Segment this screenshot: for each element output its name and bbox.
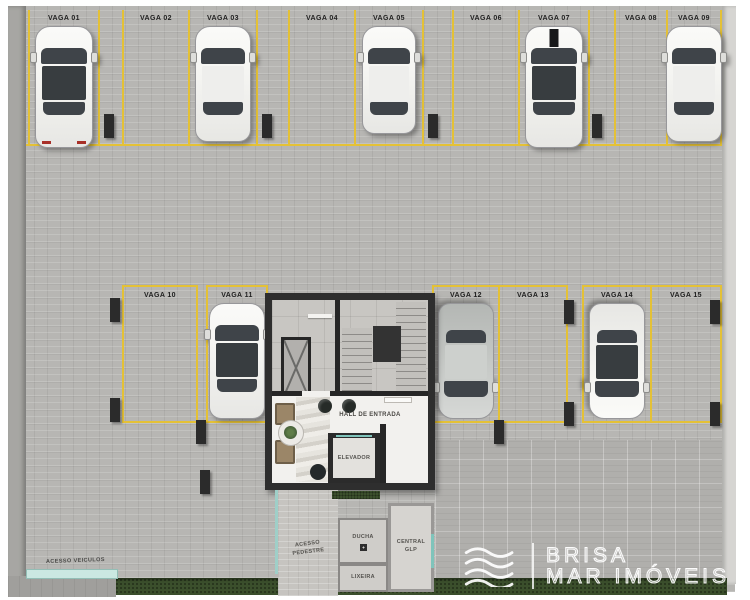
stool — [318, 399, 332, 413]
car-rear-window — [370, 102, 408, 115]
parking-stall-vaga-08: VAGA 08 — [614, 10, 668, 146]
car-mirror — [190, 52, 197, 63]
gas-central-room: CENTRAL GLP — [388, 503, 434, 592]
brand-line2: MAR IMÓVEIS — [546, 566, 730, 587]
waves-icon — [462, 545, 520, 587]
car-rear-window — [446, 330, 486, 343]
car-top-view — [209, 303, 265, 419]
brand-line1: BRISA — [546, 545, 730, 566]
stool — [342, 399, 356, 413]
stall-label: VAGA 02 — [124, 15, 188, 22]
car-mirror — [584, 382, 591, 393]
elevator: ELEVADOR — [328, 433, 380, 483]
parking-stall-vaga-02: VAGA 02 — [122, 10, 190, 146]
pillar — [196, 420, 206, 444]
car-top-view — [195, 26, 251, 142]
pillar — [262, 114, 272, 138]
parking-stall-vaga-11: VAGA 11 — [206, 285, 268, 423]
car-roof — [42, 66, 86, 100]
car-top-view — [589, 303, 645, 419]
car-mirror — [520, 52, 527, 63]
parking-stall-vaga-13: VAGA 13 — [498, 285, 568, 423]
shaft-void — [281, 337, 311, 399]
pillar — [110, 398, 120, 422]
stall-label: VAGA 07 — [520, 15, 588, 22]
car-top-view — [525, 26, 583, 148]
car-mirror — [91, 52, 98, 63]
car-mirror — [581, 52, 588, 63]
car-roof — [216, 343, 258, 377]
car-mirror — [204, 329, 211, 340]
pillar — [428, 114, 438, 138]
stall-label: VAGA 06 — [454, 15, 518, 22]
car-windshield — [672, 48, 716, 64]
door — [308, 314, 332, 318]
stall-label: VAGA 10 — [124, 292, 196, 299]
hall-label: HALL DE ENTRADA — [326, 412, 414, 418]
vehicle-entrance-ramp — [26, 569, 118, 579]
pillar — [710, 300, 720, 324]
car-mirror — [357, 52, 364, 63]
elevator-door — [336, 435, 372, 437]
car-roof — [202, 66, 244, 100]
car-top-view — [362, 26, 416, 134]
stall-label: VAGA 13 — [500, 292, 566, 299]
parking-stall-vaga-03: VAGA 03 — [190, 10, 258, 146]
logo-divider — [532, 543, 534, 589]
car-windshield — [201, 48, 245, 64]
stair-wall — [335, 300, 340, 395]
pillar — [564, 402, 574, 426]
right-wall — [722, 6, 736, 584]
staircase — [340, 300, 428, 395]
shaft-cross-icon — [284, 340, 308, 396]
car-mirror — [720, 52, 727, 63]
car-rear-window — [43, 102, 85, 115]
pillar — [200, 470, 210, 494]
car-rear-window — [203, 102, 243, 115]
stall-label: VAGA 08 — [616, 15, 666, 22]
car-top-view — [35, 26, 93, 148]
pillar — [710, 402, 720, 426]
shower-drain — [360, 544, 367, 551]
stall-label: VAGA 04 — [290, 15, 354, 22]
pillar — [592, 114, 602, 138]
left-wall — [8, 6, 26, 584]
car-mirror — [643, 382, 650, 393]
plant — [284, 426, 297, 439]
hedge — [332, 491, 380, 499]
brand-name: BRISA MAR IMÓVEIS — [546, 545, 730, 587]
car-roof — [369, 66, 409, 100]
parking-stall-vaga-10: VAGA 10 — [122, 285, 198, 423]
car-windshield — [41, 48, 87, 64]
stall-label: VAGA 12 — [434, 292, 498, 299]
room-label: LIXEIRA — [351, 574, 375, 580]
car-rear-window — [597, 330, 637, 343]
pillar — [564, 300, 574, 324]
car-windshield — [444, 381, 488, 397]
parking-stall-vaga-07: VAGA 07 — [520, 10, 590, 146]
bench — [384, 397, 412, 403]
car-mirror — [30, 52, 37, 63]
elevator-label: ELEVADOR — [338, 455, 371, 461]
trash-room: LIXEIRA — [338, 564, 388, 592]
car-rear-window — [533, 102, 575, 115]
stall-label: VAGA 09 — [668, 15, 720, 22]
car-roof — [596, 345, 638, 379]
parking-stall-vaga-14: VAGA 14 — [582, 285, 652, 423]
elevator-cab: ELEVADOR — [333, 438, 375, 478]
car-roof — [532, 66, 576, 100]
entrance-hall: HALL DE ENTRADA ELEVADOR — [272, 396, 428, 483]
car-mirror — [414, 52, 421, 63]
pillar — [104, 114, 114, 138]
garage-floor-plan: VAGA 01 VAGA 02 VAGA 03 — [0, 0, 750, 600]
vehicle-driveway — [8, 576, 116, 597]
car-rear-window — [217, 379, 257, 392]
room-label: CENTRAL GLP — [396, 538, 426, 555]
stall-label: VAGA 11 — [208, 292, 266, 299]
shower-room: DUCHA — [338, 518, 388, 564]
stair-flight — [342, 328, 372, 393]
pillar — [110, 298, 120, 322]
room-label: DUCHA — [352, 534, 373, 540]
car-windshield — [531, 48, 577, 64]
stall-label: VAGA 01 — [30, 15, 98, 22]
car-windshield — [368, 48, 410, 64]
hall-wall — [380, 424, 386, 483]
parking-stall-vaga-04: VAGA 04 — [288, 10, 356, 146]
parking-stall-vaga-12: VAGA 12 — [432, 285, 500, 423]
stall-label: VAGA 15 — [652, 292, 720, 299]
stall-label: VAGA 05 — [356, 15, 422, 22]
car-roof — [673, 66, 715, 100]
gas-room-door — [431, 534, 434, 568]
parking-stall-vaga-05: VAGA 05 — [356, 10, 424, 146]
car-mirror — [249, 52, 256, 63]
side-table — [278, 420, 304, 446]
parking-stall-vaga-01: VAGA 01 — [28, 10, 100, 146]
car-windshield — [215, 325, 259, 341]
planter — [310, 464, 326, 480]
car-mirror — [661, 52, 668, 63]
building-core: HALL DE ENTRADA ELEVADOR — [265, 293, 435, 490]
parking-stall-vaga-09: VAGA 09 — [668, 10, 722, 146]
core-upper-area — [272, 300, 428, 395]
car-top-view — [438, 303, 494, 419]
car-roof — [445, 345, 487, 379]
stall-label: VAGA 14 — [584, 292, 650, 299]
stair-landing — [373, 326, 401, 362]
car-top-view — [666, 26, 722, 142]
car-rear-window — [674, 102, 714, 115]
pillar — [494, 420, 504, 444]
parking-stall-vaga-06: VAGA 06 — [452, 10, 520, 146]
brand-watermark: BRISA MAR IMÓVEIS — [462, 540, 730, 592]
car-windshield — [595, 381, 639, 397]
stall-label: VAGA 03 — [190, 15, 256, 22]
